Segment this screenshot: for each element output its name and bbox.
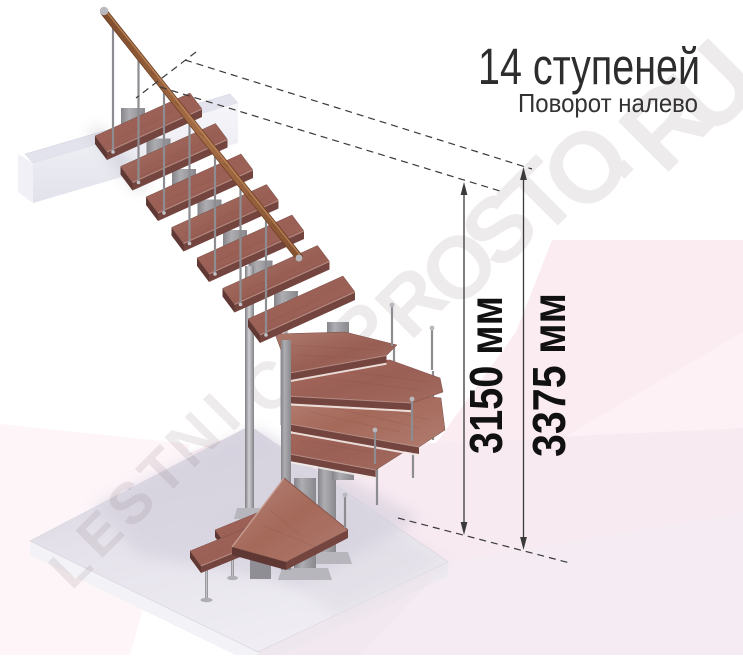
svg-text:Поворот налево: Поворот налево	[518, 88, 698, 118]
svg-text:3375 мм: 3375 мм	[523, 293, 575, 457]
svg-text:14 ступеней: 14 ступеней	[478, 38, 700, 95]
svg-text:3150 мм: 3150 мм	[460, 296, 512, 454]
